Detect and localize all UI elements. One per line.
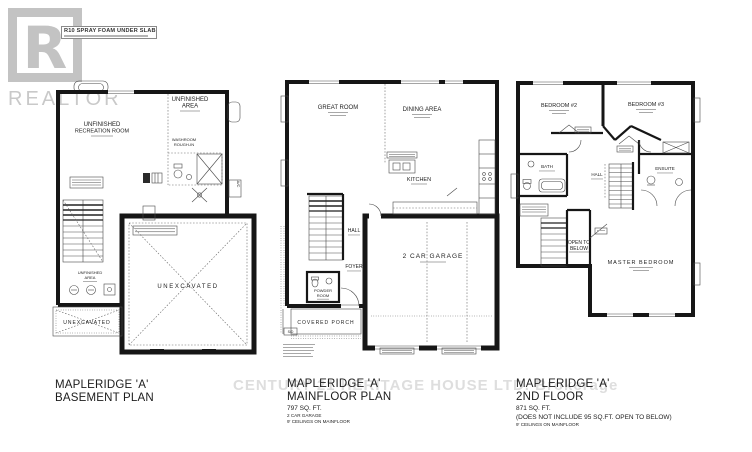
- unexcavated-small-label: UNEXCAVATED: [63, 320, 110, 326]
- foyer-sub: [347, 271, 361, 272]
- open-to-below-stairs: [541, 210, 607, 266]
- bedroom2-label: BEDROOM #2: [541, 103, 577, 109]
- mainfloor-title-line1: MAPLERIDGE 'A': [287, 378, 391, 391]
- bedroom3-sub1: [636, 109, 656, 110]
- bath-label: BATH: [541, 164, 553, 169]
- second-title-line2: 2ND FLOOR: [516, 391, 672, 404]
- unfinished-area-sub: [180, 111, 200, 112]
- second-stairs: [605, 162, 633, 210]
- bath-fixtures: [518, 154, 567, 196]
- foyer-label: FOYER: [345, 264, 363, 270]
- bedroom2-sub1: [549, 110, 569, 111]
- unfinished-small-label-2: AREA: [85, 275, 96, 280]
- garage-sub: [420, 262, 446, 263]
- ac-unit-label: A/C: [236, 181, 241, 188]
- powder-room-sub: [317, 299, 329, 300]
- kitchen-label: KITCHEN: [407, 177, 431, 183]
- great-room-sub2: [330, 115, 346, 116]
- master-bedroom-label: MASTER BEDROOM: [608, 260, 675, 266]
- second-ceiling-note: 9' CEILINGS ON MAINFLOOR: [516, 422, 672, 428]
- garage-structure: [365, 216, 497, 354]
- washroom-rough-in-fixtures: [174, 154, 222, 184]
- dining-area-sub2: [414, 117, 430, 118]
- sd-tag-label: S/D: [288, 330, 294, 334]
- rec-room-label-1: UNFINISHED: [84, 122, 121, 128]
- furnace-equipment: [143, 173, 207, 220]
- covered-porch-label: COVERED PORCH: [297, 320, 354, 326]
- mainfloor-stairs: [307, 194, 343, 260]
- second-outer-wall: [518, 83, 693, 315]
- bath-sub: [539, 171, 555, 172]
- second-title-block: MAPLERIDGE 'A' 2ND FLOOR 871 SQ. FT. (DO…: [516, 378, 672, 428]
- washroom-label-2: ROUGH-IN: [174, 142, 194, 147]
- open-to-below-label-2: BELOW: [570, 246, 588, 252]
- unfinished-area-label-2: AREA: [182, 104, 198, 110]
- great-room-sub1: [328, 112, 348, 113]
- mainfloor-title-line2: MAINFLOOR PLAN: [287, 391, 391, 404]
- floorplan-sheet: R REALTOR CENTURY 21 HERITAGE HOUSE LTD.…: [0, 0, 752, 452]
- master-bedroom-walls: [590, 228, 607, 266]
- basement-title-block: MAPLERIDGE 'A' BASEMENT PLAN: [55, 379, 154, 405]
- mainfloor-sqft: 797 SQ. FT.: [287, 405, 391, 413]
- hall-label: HALL: [348, 228, 361, 234]
- second-hall-label: HALL: [591, 172, 603, 177]
- bedroom3-label: BEDROOM #3: [628, 102, 664, 108]
- hall-sub: [348, 235, 360, 236]
- ensuite-sub: [657, 173, 673, 174]
- unfinished-area-label-1: UNFINISHED: [172, 97, 209, 103]
- second-hall-sub: [591, 179, 603, 180]
- second-windows: [511, 80, 700, 318]
- mainfloor-title-block: MAPLERIDGE 'A' MAINFLOOR PLAN 797 SQ. FT…: [287, 378, 391, 425]
- basement-title-line2: BASEMENT PLAN: [55, 392, 154, 405]
- basement-title-line1: MAPLERIDGE 'A': [55, 379, 154, 392]
- laundry-tubs: [70, 284, 116, 295]
- garage-label: 2 CAR GARAGE: [403, 253, 464, 260]
- basement-note-tag: [70, 177, 103, 188]
- mainfloor-plan-drawing: 2 CAR GARAGE COVERED PORCH S/D: [281, 76, 503, 372]
- garage-door-to-hall: [369, 204, 381, 220]
- great-room-label: GREAT ROOM: [318, 105, 358, 111]
- kitchen-sub: [411, 184, 427, 185]
- dining-area-label: DINING AREA: [403, 107, 442, 113]
- bedroom2-sub2: [552, 113, 566, 114]
- mainfloor-notes: [283, 344, 315, 357]
- basement-window-right: [228, 102, 240, 122]
- basement-plan-drawing: UNEXCAVATED UNEXCAVATED WASHROOM ROUGH-I…: [50, 80, 262, 376]
- rec-room-sub: [91, 136, 113, 137]
- bedroom3-sub2: [639, 112, 653, 113]
- slab-note-fineprint: [64, 35, 148, 37]
- second-floor-plan-drawing: BATH HALL: [511, 78, 701, 323]
- slab-note-box: R10 SPRAY FOAM UNDER SLAB: [61, 26, 157, 39]
- bedroom-closets: [551, 83, 661, 152]
- second-note-tag: [520, 204, 548, 216]
- unfinished-small-sub: [83, 281, 97, 282]
- ensuite-label: ENSUITE: [655, 166, 675, 171]
- second-sqft: 871 SQ. FT.: [516, 405, 672, 413]
- unexcavated-large-label: UNEXCAVATED: [157, 284, 218, 290]
- second-title-line1: MAPLERIDGE 'A': [516, 378, 672, 391]
- basement-door-top: [108, 89, 134, 95]
- mainfloor-ceiling-note: 9' CEILINGS ON MAINFLOOR: [287, 419, 391, 425]
- dining-area-sub1: [412, 114, 432, 115]
- powder-room-label-2: ROOM: [317, 293, 329, 298]
- rec-room-label-2: RECREATION ROOM: [75, 129, 130, 135]
- master-bedroom-sub2: [633, 270, 649, 271]
- master-bedroom-sub1: [629, 267, 653, 268]
- slab-note-text: R10 SPRAY FOAM UNDER SLAB: [64, 28, 154, 34]
- second-open-note: (DOES NOT INCLUDE 95 SQ.FT. OPEN TO BELO…: [516, 414, 672, 422]
- basement-stairs: [63, 200, 103, 262]
- kitchen-fixtures: [387, 140, 495, 214]
- realtor-logo-icon: R: [8, 8, 82, 82]
